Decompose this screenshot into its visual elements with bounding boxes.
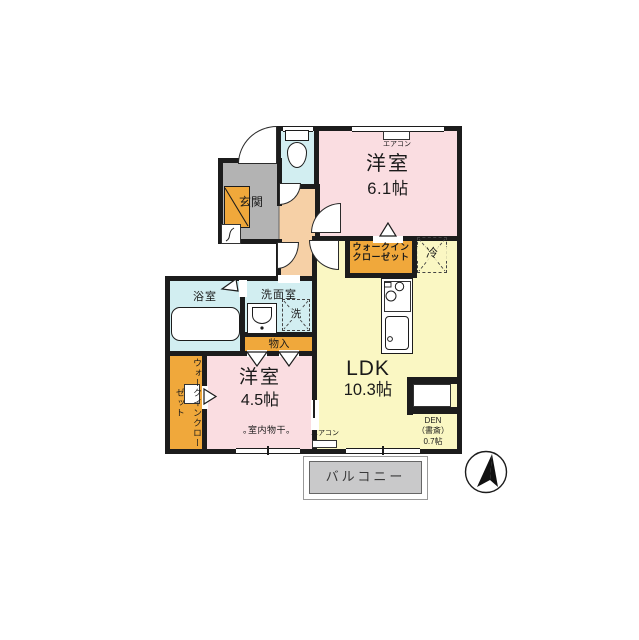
entrance-door-arc <box>238 126 277 164</box>
den-label: DEN （書斎） 0.7帖 <box>408 416 458 447</box>
indoor-drying-label: ｡室内物干｡ <box>234 425 300 435</box>
opening-storage-door-1 <box>247 350 267 357</box>
aircon-unit-bottom <box>312 440 337 448</box>
den-size: 0.7帖 <box>408 437 458 447</box>
sink-basin <box>252 307 272 324</box>
bathtub-icon <box>171 307 240 341</box>
bath-label: 浴室 <box>174 291 236 304</box>
wic-left-label: ウォークインクローゼット <box>169 357 205 449</box>
bedroom-bottom-size: 4.5帖 <box>210 392 310 410</box>
wic-top-line1: ウォークイン <box>346 242 416 252</box>
entrance-label: 玄関 <box>226 196 276 210</box>
floor-plan: 洋室 6.1帖 エアコン 玄関 ウォークイン クローゼット 冷 浴室 洗面室 洗… <box>0 0 639 640</box>
opening-hall-washroom <box>278 275 300 283</box>
washroom-label: 洗面室 <box>246 289 312 302</box>
sliding-door-leaf <box>313 400 315 418</box>
laundry-label: 洗 <box>288 308 304 320</box>
bedroom-top-size: 6.1帖 <box>338 180 438 199</box>
bedroom-top-name: 洋室 <box>338 153 438 176</box>
aircon-unit-top <box>383 131 410 140</box>
aircon-label-bottom: エアコン <box>305 430 345 438</box>
bedroom-bottom-name: 洋室 <box>210 367 310 389</box>
wic-top-label: ウォークイン クローゼット <box>346 242 416 263</box>
window-tick <box>382 446 384 455</box>
refrigerator-label: 冷 <box>417 247 447 261</box>
ldk-name: LDK <box>312 357 424 381</box>
ldk-size: 10.3帖 <box>312 381 424 400</box>
balcony-label: バルコニー <box>309 470 422 485</box>
storage-label: 物入 <box>254 338 304 350</box>
window-tick <box>267 446 269 455</box>
opening-storage-door-2 <box>279 350 299 357</box>
entrance-hall-threshold <box>276 206 282 239</box>
toilet-icon <box>285 130 309 141</box>
den-name: DEN <box>408 416 458 426</box>
aircon-label-top: エアコン <box>377 141 417 149</box>
meter-box <box>221 224 241 244</box>
north-arrow-icon <box>466 452 507 493</box>
wic-top-line2: クローゼット <box>346 252 416 262</box>
stove-icon <box>384 281 411 312</box>
den-wall <box>407 407 457 414</box>
den-alias: （書斎） <box>408 426 458 436</box>
wic-left-line1: ウォークイン <box>192 358 202 418</box>
kitchen-sink-icon <box>385 316 409 350</box>
